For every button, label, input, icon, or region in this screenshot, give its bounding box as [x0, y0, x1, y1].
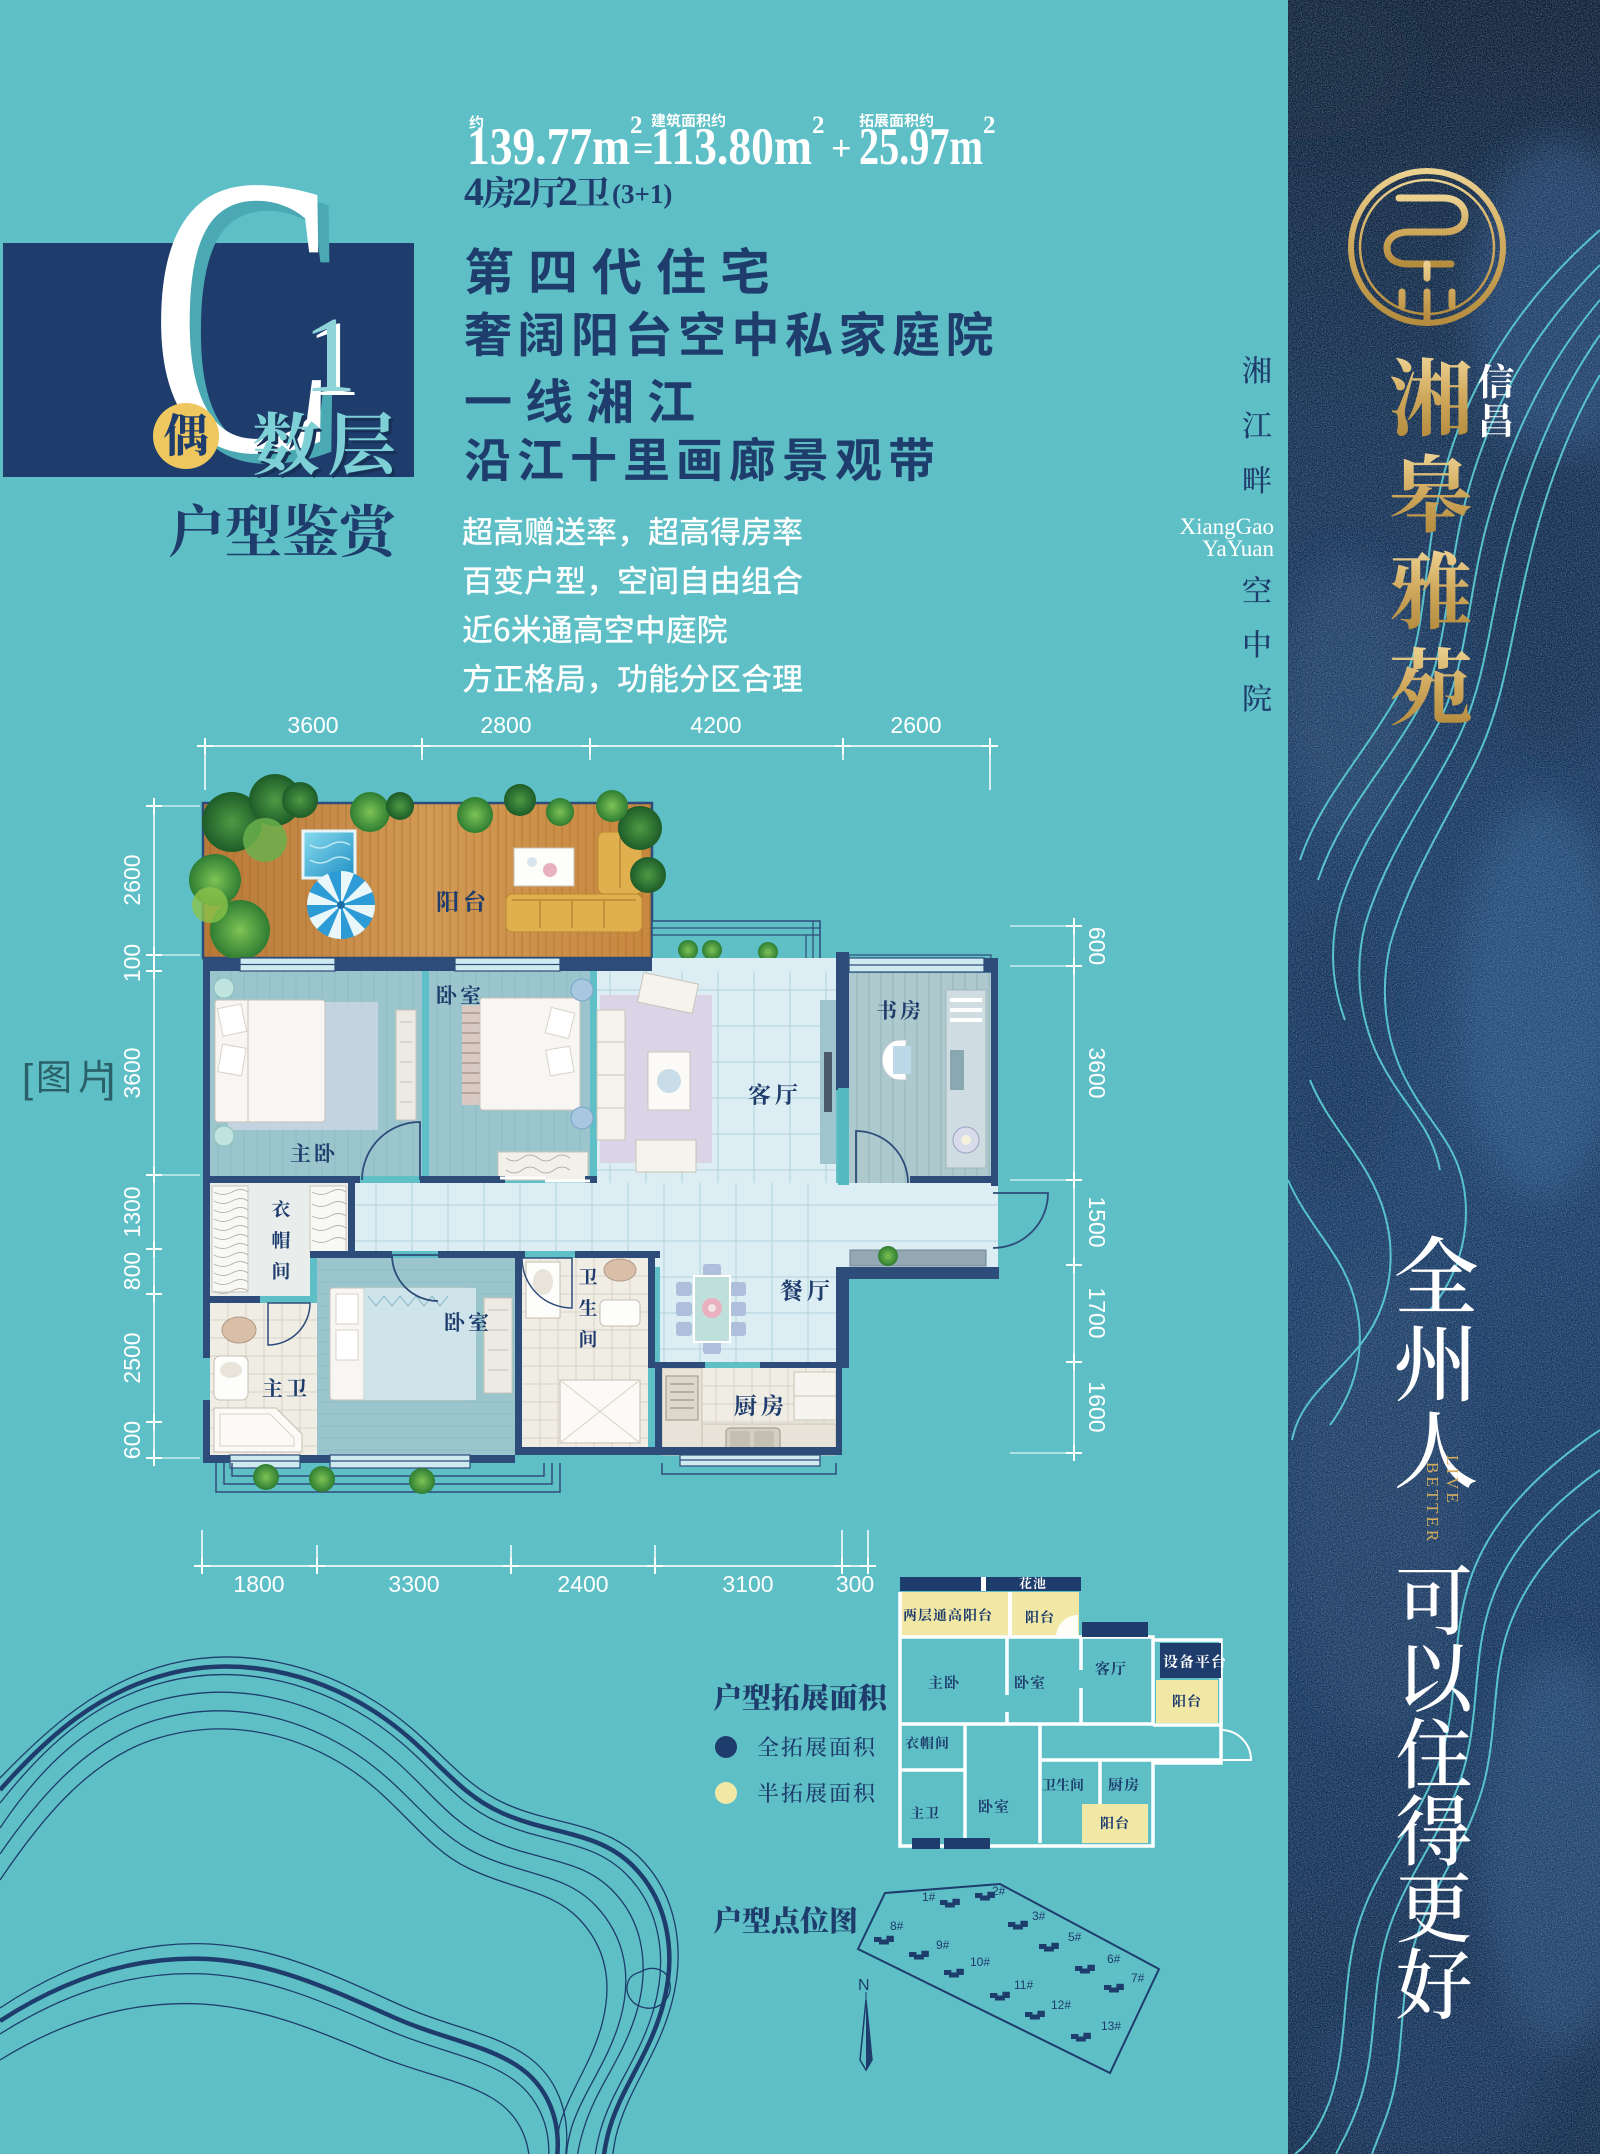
svg-text:600: 600 [119, 1421, 145, 1459]
svg-text:2#: 2# [992, 1884, 1006, 1898]
svg-text:12#: 12# [1051, 1998, 1071, 2012]
svg-text:11#: 11# [1014, 1978, 1033, 1992]
svg-text:]: ] [104, 1057, 115, 1101]
svg-text:(3+1): (3+1) [612, 179, 672, 209]
svg-text:3300: 3300 [388, 1571, 439, 1597]
svg-text:600: 600 [1084, 927, 1110, 965]
svg-text:7#: 7# [1131, 1971, 1145, 1985]
svg-text:2: 2 [983, 112, 996, 139]
svg-text:1: 1 [303, 296, 357, 415]
svg-text:LIVE: LIVE [1443, 1455, 1462, 1506]
svg-text:300: 300 [836, 1571, 874, 1597]
svg-text:6#: 6# [1107, 1952, 1121, 1966]
svg-text:3600: 3600 [287, 712, 338, 738]
svg-text:3600: 3600 [119, 1047, 145, 1098]
svg-text:2600: 2600 [119, 854, 145, 905]
svg-text:1#: 1# [922, 1890, 936, 1904]
svg-text:BETTER: BETTER [1423, 1462, 1442, 1544]
svg-text:9#: 9# [936, 1938, 950, 1952]
svg-text:1800: 1800 [233, 1571, 284, 1597]
svg-text:1700: 1700 [1084, 1287, 1110, 1338]
svg-text:+: + [831, 128, 852, 168]
svg-text:1500: 1500 [1084, 1196, 1110, 1247]
svg-text:5#: 5# [1068, 1930, 1082, 1944]
svg-text:2: 2 [812, 112, 825, 139]
svg-text:100: 100 [119, 944, 145, 982]
svg-text:3600: 3600 [1084, 1047, 1110, 1098]
svg-text:10#: 10# [970, 1955, 990, 1969]
svg-text:2500: 2500 [119, 1332, 145, 1383]
svg-text:[: [ [22, 1057, 33, 1101]
svg-text:2400: 2400 [557, 1571, 608, 1597]
svg-text:25.97m: 25.97m [859, 118, 983, 176]
svg-text:2600: 2600 [890, 712, 941, 738]
svg-text:800: 800 [119, 1252, 145, 1290]
svg-text:N: N [858, 1977, 870, 1994]
svg-text:8#: 8# [890, 1919, 904, 1933]
svg-text:13#: 13# [1101, 2019, 1121, 2033]
svg-text:1300: 1300 [119, 1186, 145, 1237]
svg-text:1600: 1600 [1084, 1381, 1110, 1432]
svg-text:113.80m: 113.80m [651, 118, 812, 176]
svg-text:YaYuan: YaYuan [1202, 536, 1274, 561]
svg-text:2800: 2800 [480, 712, 531, 738]
svg-text:2: 2 [512, 169, 532, 214]
svg-text:139.77m: 139.77m [467, 118, 630, 176]
svg-text:4: 4 [464, 169, 484, 214]
svg-text:3100: 3100 [722, 1571, 773, 1597]
svg-text:4200: 4200 [690, 712, 741, 738]
svg-text:3#: 3# [1032, 1909, 1046, 1923]
svg-text:2: 2 [558, 169, 578, 214]
